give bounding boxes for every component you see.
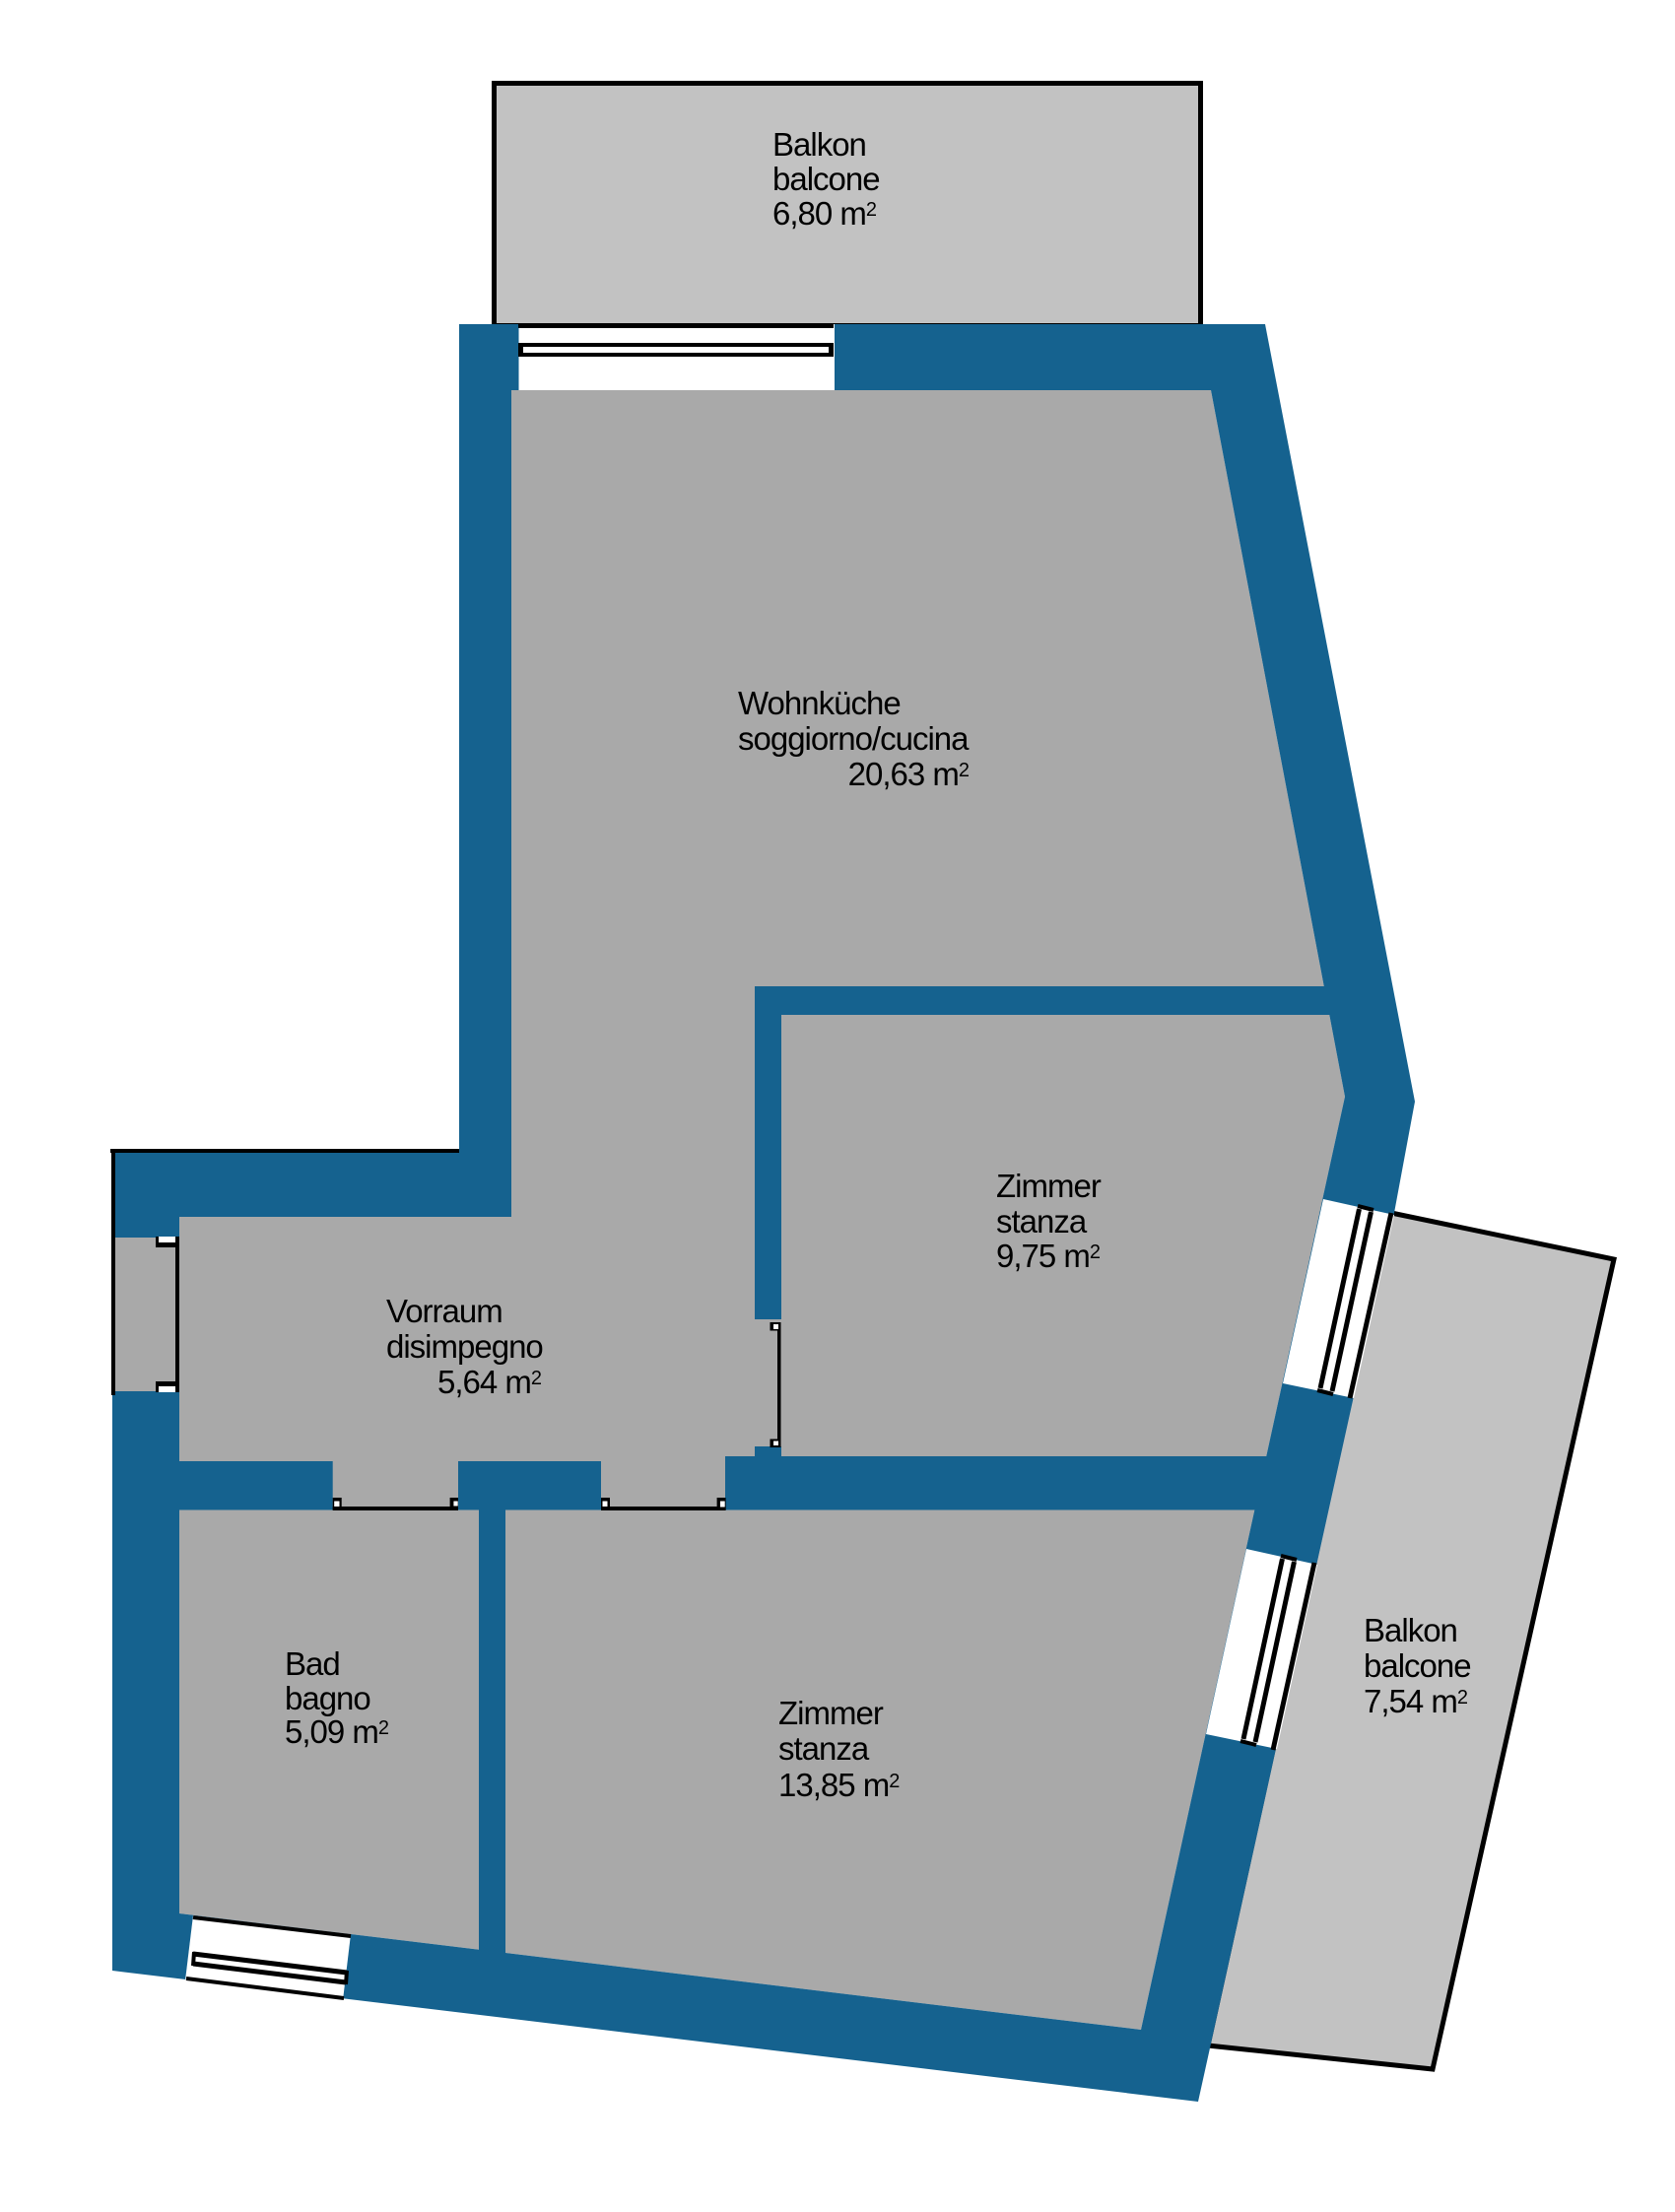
svg-text:5,09 m2: 5,09 m2 <box>285 1713 389 1750</box>
svg-text:13,85 m2: 13,85 m2 <box>778 1767 900 1803</box>
svg-text:soggiorno/cucina: soggiorno/cucina <box>738 720 970 757</box>
svg-text:Wohnküche: Wohnküche <box>738 685 901 721</box>
svg-text:Vorraum: Vorraum <box>386 1293 502 1329</box>
svg-text:balcone: balcone <box>772 161 880 197</box>
svg-text:Zimmer: Zimmer <box>778 1695 884 1731</box>
svg-text:balcone: balcone <box>1364 1647 1471 1684</box>
svg-text:7,54 m2: 7,54 m2 <box>1364 1683 1468 1719</box>
svg-text:stanza: stanza <box>996 1203 1088 1240</box>
svg-text:Zimmer: Zimmer <box>996 1168 1102 1204</box>
svg-text:Balkon: Balkon <box>772 126 866 163</box>
svg-text:5,64 m2: 5,64 m2 <box>437 1364 542 1400</box>
svg-text:disimpegno: disimpegno <box>386 1328 543 1365</box>
svg-text:9,75 m2: 9,75 m2 <box>996 1238 1101 1274</box>
svg-text:stanza: stanza <box>778 1730 870 1767</box>
svg-text:20,63 m2: 20,63 m2 <box>848 756 970 792</box>
svg-text:6,80 m2: 6,80 m2 <box>772 195 877 232</box>
svg-text:Balkon: Balkon <box>1364 1612 1457 1648</box>
svg-text:bagno: bagno <box>285 1680 370 1716</box>
svg-text:Bad: Bad <box>285 1645 340 1682</box>
